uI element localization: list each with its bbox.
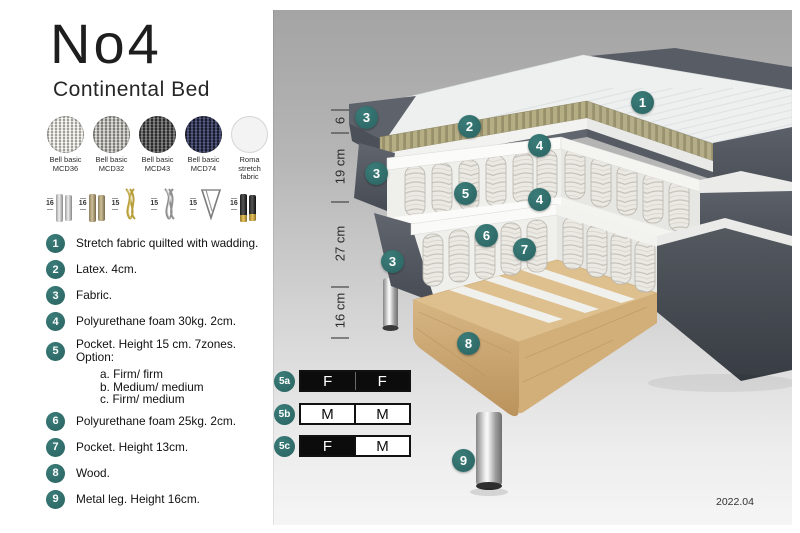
leg-option-hairpin: 15: [189, 186, 223, 222]
fabric-swatch-mcd36: Bell basicMCD36: [45, 116, 86, 182]
feature-number-badge: 3: [46, 286, 65, 305]
firmness-row-5a: 5a F F: [274, 370, 411, 392]
leg-black-gold-icon: [240, 186, 256, 222]
fabric-swatch-mcd43: Bell basicMCD43: [137, 116, 178, 182]
feature-list: 1 Stretch fabric quilted with wadding. 2…: [46, 234, 271, 516]
firmness-row-5c: 5c F M: [274, 435, 411, 457]
fabric-texture-icon: [139, 116, 176, 153]
firmness-badge-5a: 5a: [274, 371, 295, 392]
diagram-badge-8: 8: [457, 332, 480, 355]
firmness-bar-5b: M M: [299, 403, 411, 425]
product-title: No4: [50, 16, 162, 72]
feature-number-badge: 5: [46, 342, 65, 361]
swatch-label: Bell basicMCD36: [49, 156, 81, 173]
swatch-label: Bell basicMCD32: [95, 156, 127, 173]
feature-5-options: a. Firm/ firm b. Medium/ medium c. Firm/…: [100, 368, 271, 406]
fabric-swatch-roma: Romastretch fabric: [229, 116, 270, 182]
version-label: 2022.04: [716, 496, 754, 508]
feature-number-badge: 1: [46, 234, 65, 253]
leg-hairpin-icon: [199, 186, 223, 222]
diagram-badge-3-middle: 3: [365, 162, 388, 185]
swatch-label: Bell basicMCD43: [141, 156, 173, 173]
feature-number-badge: 8: [46, 464, 65, 483]
diagram-badge-3-bottom: 3: [381, 250, 404, 273]
leg-option-cylinder-silver: 16: [46, 186, 72, 222]
diagram-badge-2: 2: [458, 115, 481, 138]
measure-label-16cm: 16 cm: [333, 276, 348, 346]
feature-item-1: 1 Stretch fabric quilted with wadding.: [46, 234, 271, 253]
swatch-label: Romastretch fabric: [229, 156, 270, 182]
info-panel: No4 Continental Bed Bell basicMCD36 Bell…: [0, 0, 273, 533]
feature-item-2: 2 Latex. 4cm.: [46, 260, 271, 279]
measure-label-27cm: 27 cm: [333, 209, 348, 279]
diagram-badge-9: 9: [452, 449, 475, 472]
feature-item-7: 7 Pocket. Height 13cm.: [46, 438, 271, 457]
leg-twisted-gold-icon: [121, 186, 143, 222]
feature-number-badge: 2: [46, 260, 65, 279]
feature-item-5: 5 Pocket. Height 15 cm. 7zones. Option:: [46, 338, 271, 364]
leg-option-twisted-gold: 15: [112, 186, 144, 222]
diagram-badge-5: 5: [454, 182, 477, 205]
fabric-swatch-mcd32: Bell basicMCD32: [91, 116, 132, 182]
leg-cylinder-silver-icon: [56, 186, 72, 222]
feature-number-badge: 9: [46, 490, 65, 509]
diagram-badge-4-upper: 4: [528, 134, 551, 157]
diagram-badge-3-top: 3: [355, 106, 378, 129]
fabric-texture-icon: [185, 116, 222, 153]
firmness-badge-5b: 5b: [274, 404, 295, 425]
feature-item-9: 9 Metal leg. Height 16cm.: [46, 490, 271, 509]
swatch-label: Bell basicMCD74: [187, 156, 219, 173]
feature-number-badge: 4: [46, 312, 65, 331]
fabric-swatch-mcd74: Bell basicMCD74: [183, 116, 224, 182]
diagram-badge-4-lower: 4: [528, 188, 551, 211]
feature-item-8: 8 Wood.: [46, 464, 271, 483]
leg-twisted-silver-icon: [160, 186, 182, 222]
fabric-swatches: Bell basicMCD36 Bell basicMCD32 Bell bas…: [45, 116, 270, 182]
leg-option-twisted-silver: 15: [150, 186, 182, 222]
leg-cylinder-wood-icon: [89, 186, 105, 222]
measure-label-19cm: 19 cm: [333, 132, 348, 202]
feature-number-badge: 7: [46, 438, 65, 457]
leg-option-black-gold: 16: [230, 186, 256, 222]
diagram-badge-7: 7: [513, 238, 536, 261]
fabric-texture-icon: [93, 116, 130, 153]
firmness-row-5b: 5b M M: [274, 403, 411, 425]
firmness-bar-5c: F M: [299, 435, 411, 457]
diagram-badge-6: 6: [475, 224, 498, 247]
feature-item-6: 6 Polyurethane foam 25kg. 2cm.: [46, 412, 271, 431]
fabric-texture-icon: [47, 116, 84, 153]
firmness-bar-5a: F F: [299, 370, 411, 392]
feature-item-4: 4 Polyurethane foam 30kg. 2cm.: [46, 312, 271, 331]
leg-option-cylinder-wood: 16: [79, 186, 105, 222]
leg-options: 16 16 15 15: [46, 186, 256, 222]
diagram-panel: 6 19 cm 27 cm 16 cm 1 2 3 4 3 5 4 6 7 3 …: [273, 10, 792, 525]
infographic-page: No4 Continental Bed Bell basicMCD36 Bell…: [0, 0, 800, 533]
feature-number-badge: 6: [46, 412, 65, 431]
diagram-badge-1: 1: [631, 91, 654, 114]
firmness-badge-5c: 5c: [274, 436, 295, 457]
product-subtitle: Continental Bed: [53, 78, 210, 102]
fabric-texture-icon: [231, 116, 268, 153]
feature-item-3: 3 Fabric.: [46, 286, 271, 305]
